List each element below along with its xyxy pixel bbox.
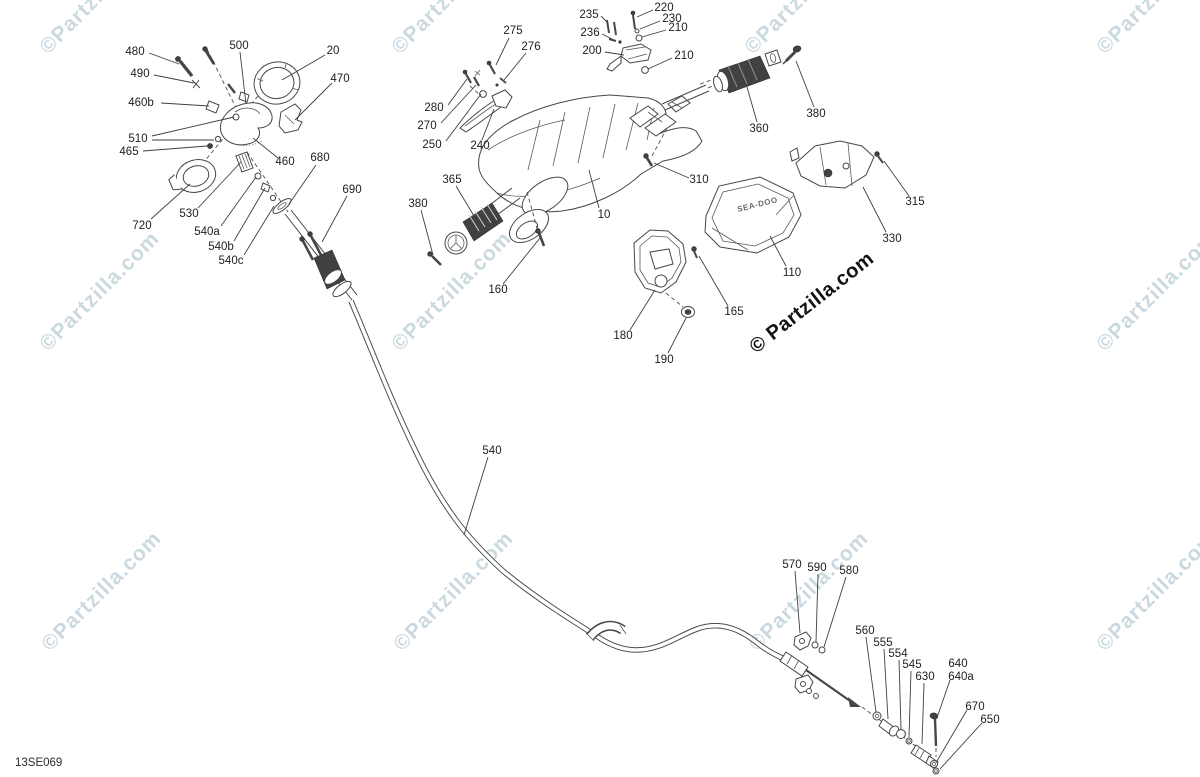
part-label-490: 490	[130, 68, 149, 80]
part-label-235: 235	[579, 9, 598, 21]
leader-line-210	[648, 58, 672, 69]
leader-line-230	[640, 21, 660, 29]
steering-cover-assembly	[165, 47, 357, 300]
part-label-640: 640	[948, 658, 967, 670]
part-label-210: 210	[674, 50, 693, 62]
leader-line-540b	[234, 188, 265, 241]
leader-line-20	[282, 55, 325, 80]
part-label-275: 275	[503, 25, 522, 37]
part-label-10: 10	[598, 209, 611, 221]
leader-line-640a	[938, 680, 950, 715]
part-label-465: 465	[119, 146, 138, 158]
part-label-270: 270	[417, 120, 436, 132]
cable-end-hardware	[873, 712, 939, 774]
watermark-dark: © Partzilla.com	[746, 248, 879, 358]
leader-line-360	[747, 87, 757, 122]
part-label-250: 250	[422, 139, 441, 151]
part-label-470: 470	[330, 73, 349, 85]
watermark-light-1: ©Partzilla.com	[387, 0, 516, 59]
leader-line-540c	[244, 206, 274, 255]
leader-line-165	[699, 256, 728, 306]
leader-line-490	[154, 75, 194, 83]
part-label-630: 630	[915, 671, 934, 683]
watermark-light-3: ©Partzilla.com	[1092, 0, 1200, 59]
part-label-380: 380	[408, 198, 427, 210]
part-label-530: 530	[179, 208, 198, 220]
watermark-light-7: ©Partzilla.com	[37, 527, 166, 656]
parts-diagram-canvas: ©Partzilla.com©Partzilla.com©Partzilla.c…	[0, 0, 1200, 777]
part-label-165: 165	[724, 306, 743, 318]
part-label-330: 330	[882, 233, 901, 245]
part-label-540b: 540b	[208, 241, 234, 253]
part-label-180: 180	[613, 330, 632, 342]
part-label-540: 540	[482, 445, 501, 457]
leader-line-680	[289, 165, 316, 204]
watermark-light-8: ©Partzilla.com	[389, 527, 518, 656]
part-label-510: 510	[128, 133, 147, 145]
part-label-190: 190	[654, 354, 673, 366]
part-label-720: 720	[132, 220, 151, 232]
part-label-580: 580	[839, 565, 858, 577]
leader-line-690	[322, 196, 347, 242]
leader-line-180	[630, 290, 655, 330]
part-label-280: 280	[424, 102, 443, 114]
leader-line-210	[642, 30, 666, 37]
part-label-590: 590	[807, 562, 826, 574]
watermark-light-0: ©Partzilla.com	[35, 0, 164, 59]
part-label-540c: 540c	[219, 255, 244, 267]
part-label-570: 570	[782, 559, 801, 571]
dark-watermark: © Partzilla.com	[746, 248, 879, 358]
covers-group: SEA-DOO	[634, 141, 883, 318]
part-label-310: 310	[689, 174, 708, 186]
leader-line-670	[937, 710, 967, 761]
leader-line-460b	[161, 103, 209, 106]
leader-line-465	[143, 146, 207, 151]
watermark-light-4: ©Partzilla.com	[35, 227, 164, 356]
part-label-315: 315	[905, 196, 924, 208]
leader-line-235	[601, 16, 608, 23]
leader-line-280	[448, 79, 467, 105]
leader-line-545	[909, 671, 911, 737]
leader-line-315	[884, 161, 909, 196]
part-label-480: 480	[125, 46, 144, 58]
part-label-545: 545	[902, 659, 921, 671]
parts-diagram-page: ©Partzilla.com©Partzilla.com©Partzilla.c…	[0, 0, 1200, 777]
part-label-540a: 540a	[194, 226, 220, 238]
leader-line-554	[899, 660, 901, 729]
leader-line-380	[421, 210, 433, 255]
leader-line-540	[464, 457, 488, 535]
leader-line-276	[504, 53, 526, 80]
part-label-640a: 640a	[948, 671, 974, 683]
watermark-light-2: ©Partzilla.com	[740, 0, 869, 59]
part-label-460: 460	[275, 156, 294, 168]
part-label-360: 360	[749, 123, 768, 135]
part-label-670: 670	[965, 701, 984, 713]
lever-and-pins	[460, 61, 512, 132]
part-label-650: 650	[980, 714, 999, 726]
part-label-380: 380	[806, 108, 825, 120]
part-label-680: 680	[310, 152, 329, 164]
part-label-460b: 460b	[128, 97, 154, 109]
part-label-240: 240	[470, 140, 489, 152]
leader-line-190	[668, 318, 686, 353]
leader-line-630	[922, 683, 924, 744]
leader-line-310	[654, 163, 689, 178]
leader-line-470	[295, 83, 332, 120]
watermark-light-10: ©Partzilla.com	[1092, 527, 1200, 656]
leader-line-275	[496, 38, 509, 65]
part-label-160: 160	[488, 284, 507, 296]
leader-line-480	[149, 53, 179, 64]
brake-lever-assembly	[607, 11, 651, 73]
part-label-200: 200	[582, 45, 601, 57]
leader-line-236	[602, 34, 612, 39]
leader-line-380	[796, 61, 814, 107]
part-label-276: 276	[521, 41, 540, 53]
diagram-code: 13SE069	[15, 757, 62, 769]
part-label-560: 560	[855, 625, 874, 637]
part-label-690: 690	[342, 184, 361, 196]
leader-line-540a	[221, 177, 256, 226]
steering-cable	[351, 301, 932, 758]
watermark-light-6: ©Partzilla.com	[1092, 227, 1200, 356]
leader-line-365	[456, 186, 477, 221]
part-label-210: 210	[668, 22, 687, 34]
leader-line-220	[637, 10, 653, 17]
part-label-500: 500	[229, 40, 248, 52]
part-label-20: 20	[327, 45, 340, 57]
part-label-365: 365	[442, 174, 461, 186]
part-label-110: 110	[783, 267, 801, 279]
leader-line-330	[863, 187, 886, 232]
leader-line-555	[884, 649, 888, 719]
leader-line-460	[253, 138, 278, 158]
part-label-236: 236	[580, 27, 599, 39]
